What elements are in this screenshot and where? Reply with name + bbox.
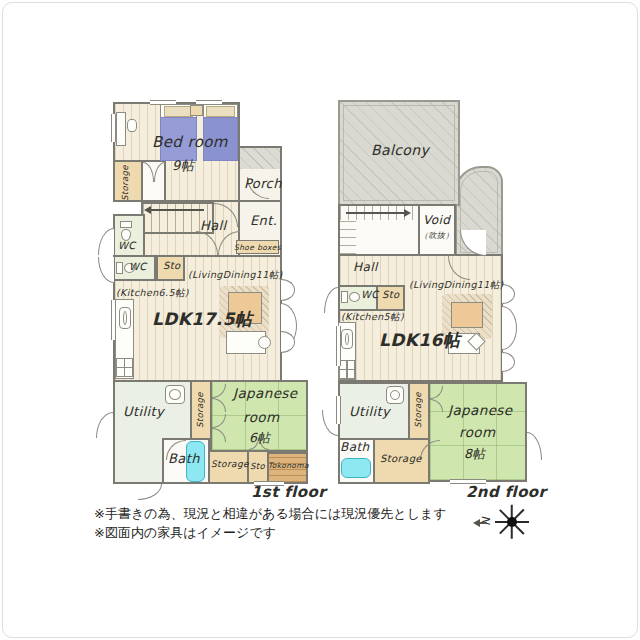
utility-sink-1f xyxy=(165,385,185,404)
toilet-icon xyxy=(120,221,132,228)
compass-center-dot xyxy=(507,517,517,527)
tokonoma-label: Tokonoma xyxy=(268,461,309,470)
wc-label-2f: WC xyxy=(361,289,379,300)
toilet-icon xyxy=(349,292,360,302)
stairs-arrow-1f xyxy=(150,209,204,211)
wc-lower-label: WC xyxy=(129,261,147,272)
floor1-caption: 1st floor xyxy=(251,483,326,501)
bedroom-size-label: 9帖 xyxy=(172,157,194,175)
sto-bottom-label-1f: Sto xyxy=(250,461,265,471)
window xyxy=(150,100,176,105)
stove-1f xyxy=(116,358,133,377)
storage-bottom-label-1f: Storage xyxy=(211,459,249,469)
japanese-size-label-2f: 8帖 xyxy=(464,446,485,463)
nightstand xyxy=(190,105,203,116)
void-label: Void xyxy=(423,213,450,227)
window xyxy=(111,114,116,142)
porch-label: Porch xyxy=(244,176,282,191)
shoe-boxes-label: Shoe boxes xyxy=(234,243,281,252)
ldk-label-1f: LDK17.5帖 xyxy=(152,308,252,331)
entrance-label: Ent. xyxy=(250,213,277,228)
window xyxy=(336,326,341,366)
wc-upper-label: WC xyxy=(118,240,136,251)
japanese-room-label-2f: room xyxy=(459,424,496,440)
window xyxy=(111,300,116,340)
balcony-label: Balcony xyxy=(371,142,429,158)
desk xyxy=(116,112,126,146)
storage-mid-label-2f: Storage xyxy=(413,392,423,428)
japanese-room-label-2f: Japanese xyxy=(448,402,513,418)
utility-sink-2f xyxy=(386,386,404,404)
pillow-1 xyxy=(164,106,193,117)
stove-2f xyxy=(339,360,355,379)
floor-plan-canvas: Shoe boxes Bed room 9帖 Storage Porch Ent… xyxy=(0,0,640,640)
stairs-treads-2f xyxy=(340,220,356,254)
hall-label-1f: Hall xyxy=(200,218,227,233)
pillow-2 xyxy=(206,106,235,117)
stairs-arrow-2f xyxy=(346,212,404,214)
side-table-1f xyxy=(258,336,271,349)
sto-label-1f: Sto xyxy=(163,260,181,271)
storage-left-label: Storage xyxy=(120,165,130,201)
disclaimer-line2: ※図面内の家具はイメージです xyxy=(94,524,276,542)
desk-chair xyxy=(127,119,137,132)
window xyxy=(336,396,341,424)
stairs-arrowhead-2f xyxy=(404,209,411,217)
living-dining-label-1f: (LivingDining11帖) xyxy=(188,269,283,282)
floor2-caption: 2nd floor xyxy=(466,483,546,501)
living-dining-label-2f: (LivingDining11帖) xyxy=(409,279,504,292)
utility-label-2f: Utility xyxy=(349,404,390,419)
compass-icon xyxy=(494,504,530,540)
japanese-room-label-1f: Japanese xyxy=(233,385,298,401)
japanese-room-label-1f: room xyxy=(243,409,280,425)
shoe-boxes: Shoe boxes xyxy=(236,240,279,254)
toilet-icon xyxy=(116,262,123,274)
dining-table-2f xyxy=(451,302,483,328)
kitchen-label-1f: (Kitchen6.5帖) xyxy=(116,287,189,300)
porch-roof-hatch xyxy=(240,148,280,169)
stairs-arrowhead-1f xyxy=(144,206,151,214)
utility-label-1f: Utility xyxy=(123,404,164,419)
japanese-size-label-1f: 6帖 xyxy=(249,430,270,447)
bedroom-label: Bed room xyxy=(152,133,228,151)
hall-label-2f: Hall xyxy=(353,260,378,274)
storage-mid-label-1f: Storage xyxy=(195,392,205,428)
window xyxy=(196,100,222,105)
kitchen-sink-2f xyxy=(341,329,353,349)
disclaimer-line1: ※手書きの為、現況と相違がある場合には現況優先とします xyxy=(94,505,447,523)
kitchen-label-2f: (Kitchen5帖) xyxy=(341,311,404,324)
bath-label-2f: Bath xyxy=(340,440,370,454)
storage-bottom-label-2f: Storage xyxy=(380,453,422,464)
compass-north-arrowhead xyxy=(473,519,480,527)
bathtub-icon-2f xyxy=(341,458,371,478)
kitchen-sink-1f xyxy=(119,307,131,329)
page-frame xyxy=(2,2,638,638)
bath-label-1f: Bath xyxy=(168,451,200,466)
ldk-label-2f: LDK16帖 xyxy=(379,329,460,352)
sto-label-2f: Sto xyxy=(382,289,400,300)
void-sub-label: （吹抜） xyxy=(420,230,454,241)
toilet-icon xyxy=(341,291,348,303)
